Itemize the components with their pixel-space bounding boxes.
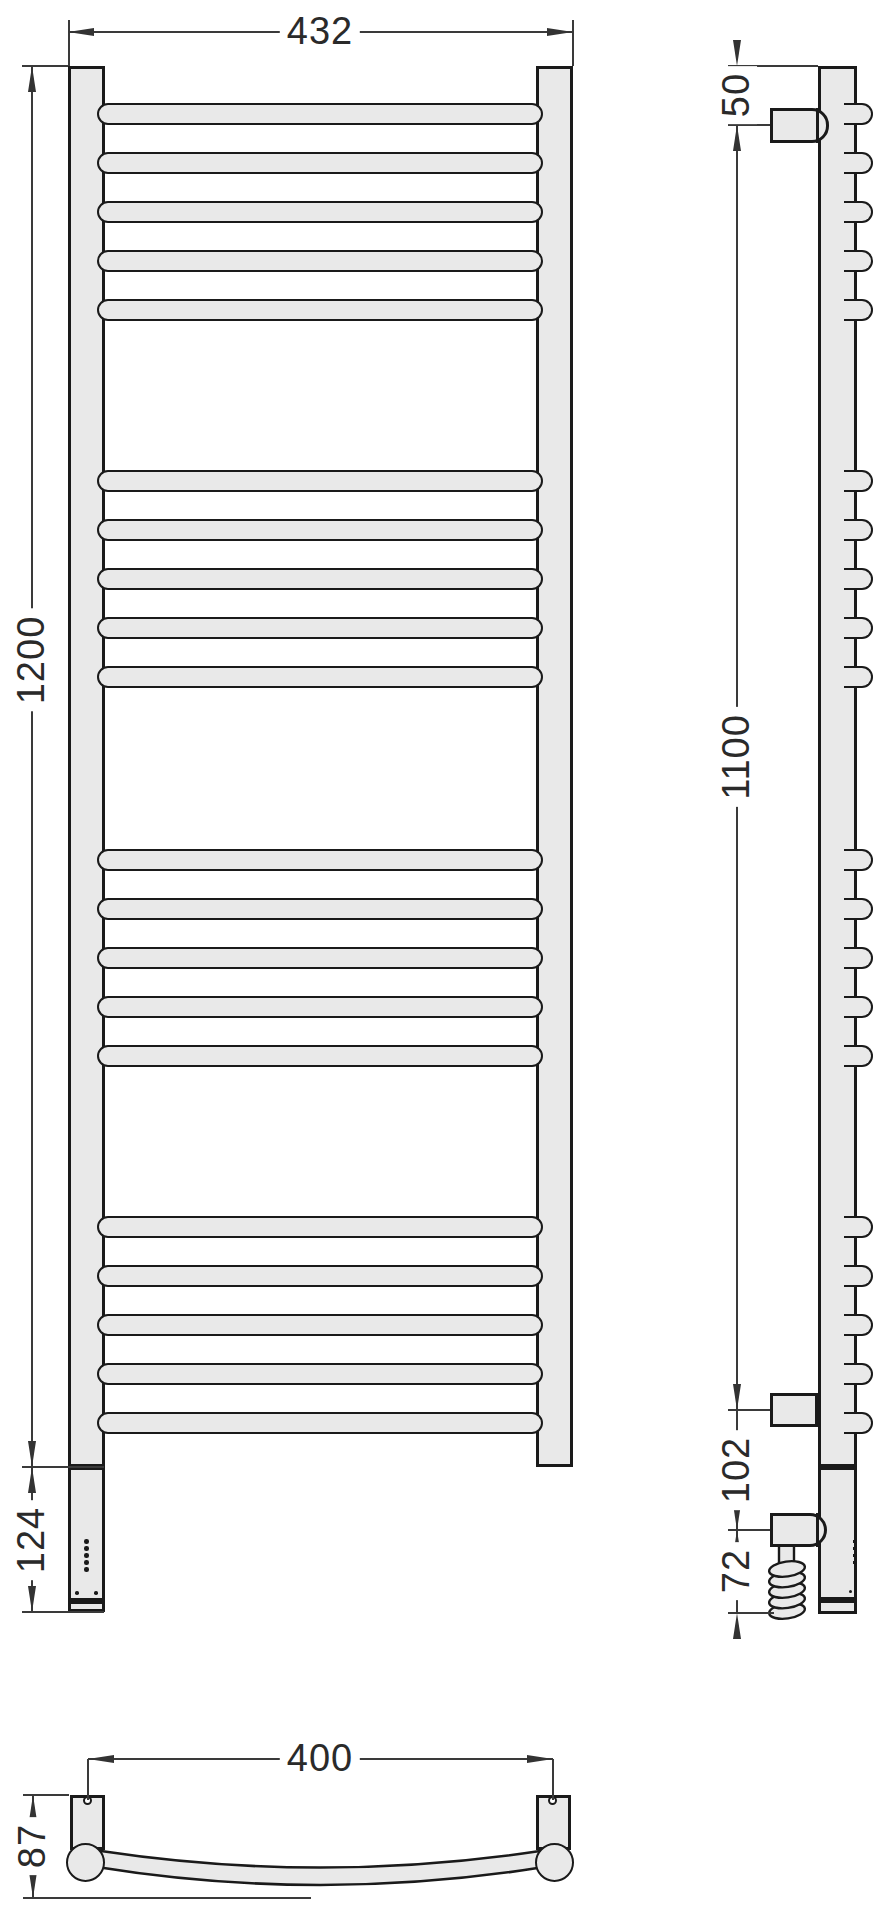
rung-end [844,519,873,541]
dim-line-side-chain [736,66,738,1613]
dimension-arrow-down [28,1441,36,1467]
top-view-right-tube-circle [535,1843,574,1882]
rung-end [844,947,873,969]
technical-drawing-canvas: 432 1200 124 50 1100 102 72 400 87 [0,0,894,1920]
rung [97,1314,543,1336]
top-view-left-tube-circle [66,1843,105,1882]
rung [97,1363,543,1385]
rung [97,250,543,272]
rung-end [844,299,873,321]
side-heater-box-endcap [818,1600,857,1614]
rung-end [844,1045,873,1067]
rung-end [844,1363,873,1385]
rung-end [844,250,873,272]
rung-end [844,1314,873,1336]
dimension-arrow-right [547,28,573,36]
rung [97,1412,543,1434]
extension-line [23,1897,311,1899]
dim-cable-drop: 72 [717,1542,757,1600]
dim-depth: 87 [13,1817,53,1875]
dim-bracket-span: 1100 [717,707,757,807]
dimension-arrow-down [733,1384,741,1410]
rung [97,299,543,321]
dim-bracket-to-cable: 102 [717,1430,757,1510]
rung [97,849,543,871]
dimension-arrow-up [733,1613,741,1639]
side-box-dot [849,1590,852,1593]
rung [97,201,543,223]
rung [97,1265,543,1287]
rung-end [844,568,873,590]
dim-line-bracket-spacing [348,1758,553,1760]
side-bottom-wall-bracket [770,1393,818,1427]
dim-heating-unit: 124 [12,1500,52,1580]
dimension-arrow-left [88,1755,114,1763]
indicator-led-dot [84,1560,89,1565]
dim-overall-width: 432 [280,12,360,52]
indicator-led-dot [84,1539,89,1544]
dim-overall-height: 1200 [12,609,52,712]
dim-line-overall-width [348,31,573,33]
front-left-column [68,66,105,1467]
box-screw-dot [75,1591,79,1595]
rung [97,152,543,174]
rung-end [844,470,873,492]
side-column-edge-over-bracket [816,108,819,143]
side-column [818,66,857,1467]
rung-end [844,103,873,125]
rung-end [844,201,873,223]
rung [97,519,543,541]
rung [97,103,543,125]
dimension-arrow-down [28,1586,36,1612]
extension-line [552,1759,554,1800]
dim-bracket-spacing: 400 [280,1739,360,1779]
dim-line-left-chain [31,66,33,1612]
front-right-column [536,66,573,1467]
rung [97,947,543,969]
side-box-edge-mark [853,1554,857,1557]
dimension-arrow-up [28,1467,36,1493]
rung-end [844,1216,873,1238]
rung [97,666,543,688]
dim-line-bracket-spacing [88,1758,292,1760]
rung-end [844,617,873,639]
rung-end [844,1412,873,1434]
side-top-wall-bracket [770,108,829,143]
side-box-edge-over-gland [816,1513,819,1547]
rung [97,617,543,639]
rung [97,568,543,590]
dim-top-offset: 50 [717,66,757,124]
indicator-led-dot [84,1567,89,1572]
rung [97,996,543,1018]
side-box-edge-mark [853,1540,857,1543]
dimension-arrow-down [29,1872,37,1898]
rung [97,1045,543,1067]
rung-end [844,849,873,871]
dimension-arrow-down [733,40,741,66]
rung-end [844,1265,873,1287]
indicator-led-dot [84,1553,89,1558]
side-box-edge-mark [853,1547,857,1550]
dim-line-overall-width [68,31,292,33]
rung [97,898,543,920]
front-heater-box [68,1467,105,1601]
rung-end [844,152,873,174]
dimension-arrow-right [527,1755,553,1763]
extension-line [87,1759,89,1800]
rung-end [844,996,873,1018]
box-screw-dot [94,1591,98,1595]
dimension-arrow-up [733,125,741,151]
top-view-bowed-tube [97,1851,544,1885]
rung [97,1216,543,1238]
rung [97,470,543,492]
dimension-arrow-up [28,66,36,92]
side-box-edge-mark [853,1561,857,1564]
indicator-led-dot [84,1546,89,1551]
rung-end [844,898,873,920]
dimension-arrow-left [68,28,94,36]
rung-end [844,666,873,688]
